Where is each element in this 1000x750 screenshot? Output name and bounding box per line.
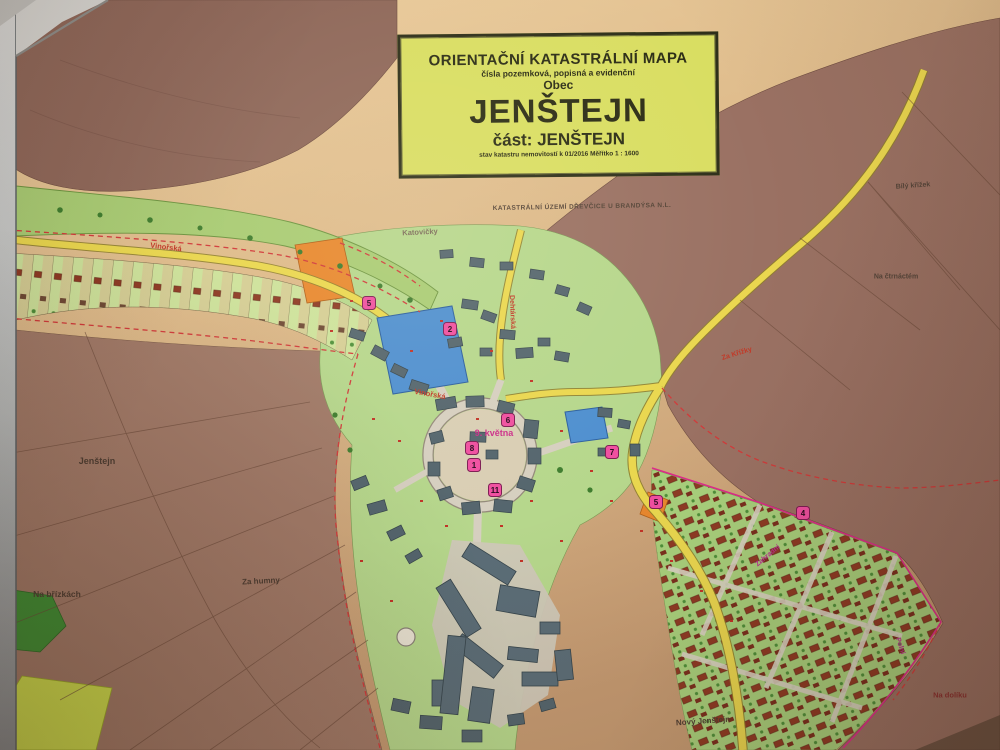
- silo: [397, 628, 415, 646]
- place-label-na-doliku: Na dolíku: [933, 691, 967, 700]
- badge-6: 6: [501, 413, 515, 427]
- badge-4-number: 4: [801, 509, 805, 518]
- pond: [377, 306, 468, 394]
- badge-2-number: 2: [448, 325, 452, 334]
- title-status: stav katastru nemovitostí k 01/2016 Měří…: [479, 150, 639, 159]
- board-frame-strip: [0, 0, 16, 750]
- title-part: část: JENŠTEJN: [493, 129, 625, 149]
- badge-4: 4: [796, 506, 810, 520]
- place-label-na-ctrnactem: Na čtrnáctém: [874, 274, 918, 281]
- badge-11-number: 11: [491, 486, 499, 495]
- place-label-katovicky: Katovičky: [402, 227, 438, 238]
- street-label-dehtarska: Dehtárská: [508, 295, 516, 329]
- badge-6-number: 6: [506, 416, 510, 425]
- title-box: ORIENTAČNÍ KATASTRÁLNÍ MAPA čísla pozemk…: [397, 31, 719, 178]
- badge-5a-number: 5: [367, 299, 371, 308]
- badge-2: 2: [443, 322, 457, 336]
- title-line-3: Obec: [543, 79, 573, 93]
- badge-7: 7: [605, 445, 619, 459]
- badge-11: 11: [488, 483, 502, 497]
- badge-5b: 5: [649, 495, 663, 509]
- badge-8-number: 8: [470, 444, 474, 453]
- badge-5b-number: 5: [654, 498, 658, 507]
- title-municipality: JENŠTEJN: [469, 92, 648, 131]
- meadow-light: [0, 676, 112, 750]
- map-photo: ORIENTAČNÍ KATASTRÁLNÍ MAPA čísla pozemk…: [0, 0, 1000, 750]
- place-label-jenstejn: Jenštejn: [79, 456, 116, 466]
- badge-8: 8: [465, 441, 479, 455]
- badge-1-number: 1: [472, 461, 476, 470]
- street-label-9-kvetna: 9. května: [475, 428, 514, 438]
- badge-5a: 5: [362, 296, 376, 310]
- badge-1: 1: [467, 458, 481, 472]
- place-label-na-brizkach: Na břízkách: [33, 589, 81, 599]
- badge-7-number: 7: [610, 448, 614, 457]
